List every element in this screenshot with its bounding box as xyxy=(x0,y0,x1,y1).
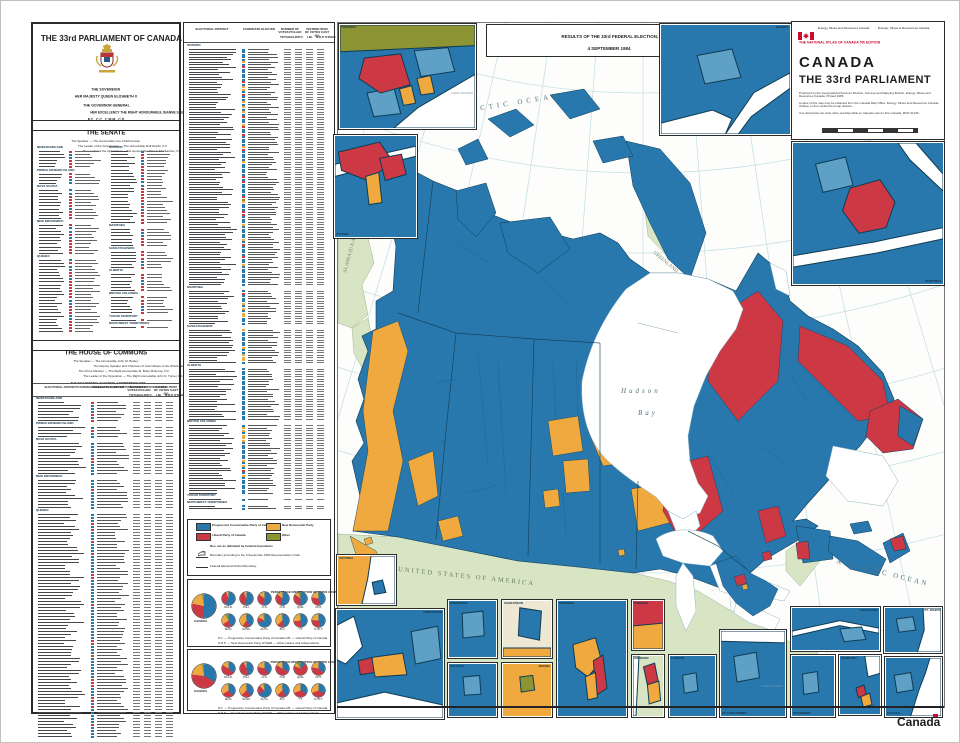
text-bar xyxy=(38,679,71,680)
text-bar xyxy=(147,277,162,278)
text-bar xyxy=(111,216,133,217)
text-bar xyxy=(144,408,151,409)
text-bar xyxy=(133,489,140,490)
text-bar xyxy=(97,646,117,647)
text-bar xyxy=(306,508,313,509)
inset-map-calgary: CALGARY xyxy=(447,662,498,718)
text-bar xyxy=(38,547,77,548)
text-bar xyxy=(144,625,151,626)
table-row xyxy=(187,507,331,510)
text-bar xyxy=(97,417,121,418)
text-bar xyxy=(155,598,162,599)
text-bar xyxy=(144,589,151,590)
text-bar xyxy=(38,601,81,602)
text-bar xyxy=(166,417,173,418)
column-subheader: P.C. xyxy=(298,36,303,39)
text-bar xyxy=(38,417,79,418)
text-bar xyxy=(166,498,173,499)
text-bar xyxy=(147,160,166,161)
inset-label: VICTORIA xyxy=(339,557,353,560)
text-bar xyxy=(144,649,151,650)
text-bar xyxy=(75,183,99,184)
province-pie-label: ONT. xyxy=(312,676,325,679)
text-bar xyxy=(97,649,122,650)
text-bar xyxy=(38,703,65,704)
inset-label: ST. JOHN'S xyxy=(924,609,940,612)
text-bar xyxy=(75,312,97,313)
text-bar xyxy=(97,676,124,677)
text-bar xyxy=(144,541,151,542)
text-bar xyxy=(155,601,162,602)
text-bar xyxy=(147,219,171,220)
province-pie-label: B.C. xyxy=(276,698,289,701)
text-bar xyxy=(147,170,168,171)
text-bar xyxy=(155,736,162,737)
text-bar xyxy=(166,433,173,434)
province-group: ONTARIO xyxy=(109,146,177,224)
text-bar xyxy=(133,433,140,434)
text-bar xyxy=(38,592,73,593)
text-bar xyxy=(133,697,140,698)
text-bar xyxy=(155,433,162,434)
text-bar xyxy=(38,408,80,409)
province-group-label: MANITOBA xyxy=(109,224,125,227)
text-bar xyxy=(155,443,162,444)
credit-line-2: Copies of this map may be obtained from … xyxy=(799,102,940,108)
text-bar xyxy=(144,452,151,453)
text-bar xyxy=(144,718,151,719)
text-bar xyxy=(155,730,162,731)
text-bar xyxy=(38,613,74,614)
text-bar xyxy=(38,583,71,584)
text-bar xyxy=(97,598,121,599)
text-bar xyxy=(147,284,164,285)
text-bar xyxy=(144,402,151,403)
text-bar xyxy=(166,568,173,569)
text-bar xyxy=(111,191,134,192)
text-bar xyxy=(166,574,173,575)
text-bar xyxy=(144,640,151,641)
text-bar xyxy=(133,625,140,626)
inset-map-canvas xyxy=(661,25,790,134)
table-row xyxy=(36,735,178,738)
text-bar xyxy=(155,535,162,536)
text-bar xyxy=(166,619,173,620)
text-bar xyxy=(155,562,162,563)
text-bar xyxy=(39,294,64,295)
text-bar xyxy=(75,212,96,213)
text-bar xyxy=(38,664,71,665)
text-bar xyxy=(155,547,162,548)
text-bar xyxy=(111,255,136,256)
party-chip xyxy=(242,508,245,510)
text-bar xyxy=(147,245,167,246)
province-group-label: NEWFOUNDLAND xyxy=(37,146,63,149)
senate-list-column-b: ONTARIOMANITOBASASKATCHEWANALBERTABRITIS… xyxy=(109,146,177,329)
text-bar xyxy=(155,501,162,502)
text-bar xyxy=(133,461,140,462)
text-bar xyxy=(133,619,140,620)
inset-map-windsor: WINDSOR xyxy=(631,654,665,718)
text-bar xyxy=(166,622,173,623)
text-bar xyxy=(155,646,162,647)
text-bar xyxy=(38,492,66,493)
text-bar xyxy=(166,589,173,590)
text-bar xyxy=(111,287,131,288)
text-bar xyxy=(75,281,94,282)
text-bar xyxy=(39,202,61,203)
inset-label: MONTRÉAL xyxy=(925,280,942,283)
text-bar xyxy=(147,163,166,164)
text-bar xyxy=(147,166,164,167)
text-bar xyxy=(155,532,162,533)
text-bar xyxy=(38,571,70,572)
text-bar xyxy=(38,718,77,719)
text-bar xyxy=(144,703,151,704)
text-bar xyxy=(97,658,127,659)
text-bar xyxy=(38,470,68,471)
text-bar xyxy=(38,420,78,421)
text-bar xyxy=(133,470,140,471)
text-bar xyxy=(144,550,151,551)
text-bar xyxy=(39,328,62,329)
province-group: ALBERTA xyxy=(109,269,177,292)
text-bar xyxy=(75,180,100,181)
text-bar xyxy=(147,207,165,208)
text-bar xyxy=(97,700,117,701)
text-bar xyxy=(133,541,140,542)
text-bar xyxy=(144,715,151,716)
text-bar xyxy=(133,544,140,545)
text-bar xyxy=(155,414,162,415)
text-bar xyxy=(144,532,151,533)
inset-map-canvas xyxy=(885,608,941,652)
text-bar xyxy=(147,242,163,243)
text-bar xyxy=(155,565,162,566)
text-bar xyxy=(38,568,65,569)
text-bar xyxy=(144,667,151,668)
text-bar xyxy=(144,619,151,620)
text-bar xyxy=(166,470,173,471)
text-bar xyxy=(144,685,151,686)
text-bar xyxy=(155,480,162,481)
text-bar xyxy=(166,595,173,596)
text-bar xyxy=(38,458,83,459)
text-bar xyxy=(144,652,151,653)
text-bar xyxy=(133,703,140,704)
text-bar xyxy=(155,556,162,557)
text-bar xyxy=(97,640,120,641)
text-bar xyxy=(97,694,120,695)
text-bar xyxy=(97,538,116,539)
text-bar xyxy=(147,229,164,230)
text-bar xyxy=(38,655,71,656)
text-bar xyxy=(166,443,173,444)
text-bar xyxy=(111,173,133,174)
text-bar xyxy=(155,721,162,722)
text-bar xyxy=(155,631,162,632)
text-bar xyxy=(166,706,173,707)
text-bar xyxy=(133,628,140,629)
text-bar xyxy=(38,688,71,689)
text-bar xyxy=(38,553,84,554)
text-bar xyxy=(38,691,82,692)
text-bar xyxy=(155,420,162,421)
text-bar xyxy=(38,467,86,468)
text-bar xyxy=(133,604,140,605)
text-bar xyxy=(75,285,100,286)
text-bar xyxy=(38,709,71,710)
text-bar xyxy=(133,598,140,599)
text-bar xyxy=(97,443,123,444)
text-bar xyxy=(147,222,167,223)
text-bar xyxy=(166,607,173,608)
text-bar xyxy=(39,199,58,200)
text-bar xyxy=(166,637,173,638)
text-bar xyxy=(133,637,140,638)
text-bar xyxy=(39,154,64,155)
text-bar xyxy=(111,309,132,310)
text-bar xyxy=(155,589,162,590)
province-group: NEW BRUNSWICK xyxy=(37,220,105,255)
text-bar xyxy=(97,718,124,719)
text-bar xyxy=(97,523,118,524)
text-bar xyxy=(97,730,116,731)
text-bar xyxy=(75,303,99,304)
text-bar xyxy=(166,458,173,459)
province-group-label: PRINCE EDWARD ISLAND xyxy=(37,169,75,172)
inset-map-canvas xyxy=(335,136,416,237)
text-bar xyxy=(133,616,140,617)
text-bar xyxy=(75,300,91,301)
text-bar xyxy=(39,319,57,320)
text-bar xyxy=(166,495,173,496)
province-pie-chart xyxy=(294,592,307,605)
text-bar xyxy=(133,607,140,608)
map-title-line1: RESULTS OF THE 33rd FEDERAL ELECTION, xyxy=(561,34,658,39)
text-bar xyxy=(38,489,71,490)
text-bar xyxy=(133,718,140,719)
text-bar xyxy=(97,637,122,638)
text-bar xyxy=(133,532,140,533)
text-bar xyxy=(133,411,140,412)
text-bar xyxy=(147,151,164,152)
column-header: NUMBER OF VOTES POLLED xyxy=(278,28,302,34)
province-pie-label: P.E.I. xyxy=(240,606,253,609)
text-bar xyxy=(144,507,151,508)
text-bar xyxy=(75,196,98,197)
text-bar xyxy=(155,583,162,584)
text-bar xyxy=(39,300,55,301)
text-bar xyxy=(155,619,162,620)
text-bar xyxy=(144,417,151,418)
text-bar xyxy=(97,574,128,575)
text-bar xyxy=(144,568,151,569)
province-group: NEW BRUNSWICK xyxy=(36,475,178,509)
text-bar xyxy=(166,535,173,536)
text-bar xyxy=(97,595,129,596)
text-bar xyxy=(155,446,162,447)
text-bar xyxy=(133,517,140,518)
text-bar xyxy=(166,730,173,731)
party-chip xyxy=(141,326,144,328)
province-group-label: ALBERTA xyxy=(187,364,201,367)
inset-map-toronto: TORONTOLAKE ONTARIO xyxy=(338,23,477,130)
text-bar xyxy=(144,586,151,587)
text-bar xyxy=(166,667,173,668)
province-group: BRITISH COLUMBIA xyxy=(109,292,177,315)
text-bar xyxy=(155,607,162,608)
text-bar xyxy=(38,685,69,686)
text-bar xyxy=(144,523,151,524)
text-bar xyxy=(166,643,173,644)
dept-name-fr: Énergie, Mines et Ressources Canada xyxy=(878,27,938,30)
bottom-neatline xyxy=(337,706,944,708)
text-bar xyxy=(133,529,140,530)
text-bar xyxy=(133,547,140,548)
text-bar xyxy=(155,571,162,572)
text-bar xyxy=(144,637,151,638)
text-bar xyxy=(166,483,173,484)
text-bar xyxy=(97,622,119,623)
province-pie-label: N.S. xyxy=(258,606,271,609)
text-bar xyxy=(39,312,61,313)
text-bar xyxy=(38,730,67,731)
text-bar xyxy=(38,541,67,542)
column-header: CANDIDATE ELECTED xyxy=(242,28,276,31)
text-bar xyxy=(97,550,129,551)
text-bar xyxy=(133,501,140,502)
text-bar xyxy=(75,250,98,251)
text-bar xyxy=(97,568,120,569)
parliament-panel: THE 33rd PARLIAMENT OF CANADA THE SOVERE… xyxy=(31,22,181,714)
text-bar xyxy=(133,643,140,644)
text-bar xyxy=(38,559,79,560)
text-bar xyxy=(155,628,162,629)
hand-icon xyxy=(198,544,206,550)
province-pie-chart xyxy=(276,592,289,605)
text-bar xyxy=(38,433,81,434)
text-bar xyxy=(133,402,140,403)
coat-of-arms-icon xyxy=(95,44,119,76)
inset-label: HAMILTON xyxy=(841,657,857,660)
text-bar xyxy=(133,646,140,647)
text-bar xyxy=(38,706,80,707)
text-bar xyxy=(166,523,173,524)
text-bar xyxy=(166,685,173,686)
text-bar xyxy=(155,613,162,614)
text-bar xyxy=(75,263,98,264)
text-bar xyxy=(155,670,162,671)
text-bar xyxy=(166,577,173,578)
pie-panel-1984: PERCENTAGE DISTRIBUTION OF VOTES CAST AN… xyxy=(187,579,331,647)
inset-label: WINDSOR xyxy=(634,657,649,660)
text-bar xyxy=(75,325,93,326)
text-bar xyxy=(38,480,76,481)
table-row xyxy=(109,326,177,329)
text-bar xyxy=(75,237,94,238)
text-bar xyxy=(39,240,61,241)
text-bar xyxy=(166,634,173,635)
text-bar xyxy=(155,691,162,692)
province-pie-chart xyxy=(276,684,289,697)
province-group: BRITISH COLUMBIA xyxy=(187,420,331,494)
country-title: CANADA xyxy=(799,54,876,71)
text-bar xyxy=(144,712,151,713)
text-bar xyxy=(97,420,118,421)
text-bar xyxy=(166,430,173,431)
legend-item-label: Liberal Party of Canada xyxy=(212,534,246,537)
inset-label: VANCOUVER xyxy=(423,611,442,614)
province-pie-chart xyxy=(276,614,289,627)
text-bar xyxy=(147,261,171,262)
text-bar xyxy=(166,562,173,563)
text-bar xyxy=(38,580,79,581)
text-bar xyxy=(133,559,140,560)
text-bar xyxy=(111,207,129,208)
text-bar xyxy=(133,661,140,662)
text-bar xyxy=(97,682,126,683)
text-bar xyxy=(97,625,118,626)
text-bar xyxy=(38,446,82,447)
text-bar xyxy=(39,234,64,235)
text-bar xyxy=(39,247,61,248)
text-bar xyxy=(147,194,161,195)
text-bar xyxy=(133,571,140,572)
text-bar xyxy=(38,529,79,530)
text-bar xyxy=(75,260,96,261)
text-bar xyxy=(166,628,173,629)
text-bar xyxy=(166,625,173,626)
text-bar xyxy=(38,682,77,683)
text-bar xyxy=(75,294,91,295)
text-bar xyxy=(38,504,68,505)
text-bar xyxy=(166,538,173,539)
text-bar xyxy=(144,405,151,406)
text-bar xyxy=(144,556,151,557)
inset-map-london: LONDON xyxy=(668,654,717,718)
text-bar xyxy=(133,556,140,557)
canada-pie-label: CANADA xyxy=(194,690,207,693)
text-bar xyxy=(155,664,162,665)
province-pie-label: MAN. xyxy=(222,628,235,631)
text-bar xyxy=(39,177,61,178)
inset-label: CALGARY xyxy=(450,665,465,668)
commons-column-headers: ELECTORAL DISTRICTCANDIDATE ELECTEDNUMBE… xyxy=(33,383,179,397)
text-bar xyxy=(133,706,140,707)
text-bar xyxy=(97,655,120,656)
column-subheader: LIB. xyxy=(307,36,313,39)
text-bar xyxy=(38,625,68,626)
province-group: SASKATCHEWAN xyxy=(187,325,331,364)
text-bar xyxy=(147,274,162,275)
text-bar xyxy=(38,436,67,437)
text-bar xyxy=(133,634,140,635)
text-bar xyxy=(144,727,151,728)
text-bar xyxy=(144,709,151,710)
text-bar xyxy=(155,577,162,578)
text-bar xyxy=(38,514,78,515)
text-bar xyxy=(144,607,151,608)
text-bar xyxy=(144,411,151,412)
text-bar xyxy=(166,691,173,692)
text-bar xyxy=(38,544,68,545)
text-bar xyxy=(75,247,89,248)
text-bar xyxy=(75,243,91,244)
text-bar xyxy=(111,194,128,195)
text-bar xyxy=(147,176,162,177)
inset-map-kitchener: KITCHENER xyxy=(790,654,836,718)
